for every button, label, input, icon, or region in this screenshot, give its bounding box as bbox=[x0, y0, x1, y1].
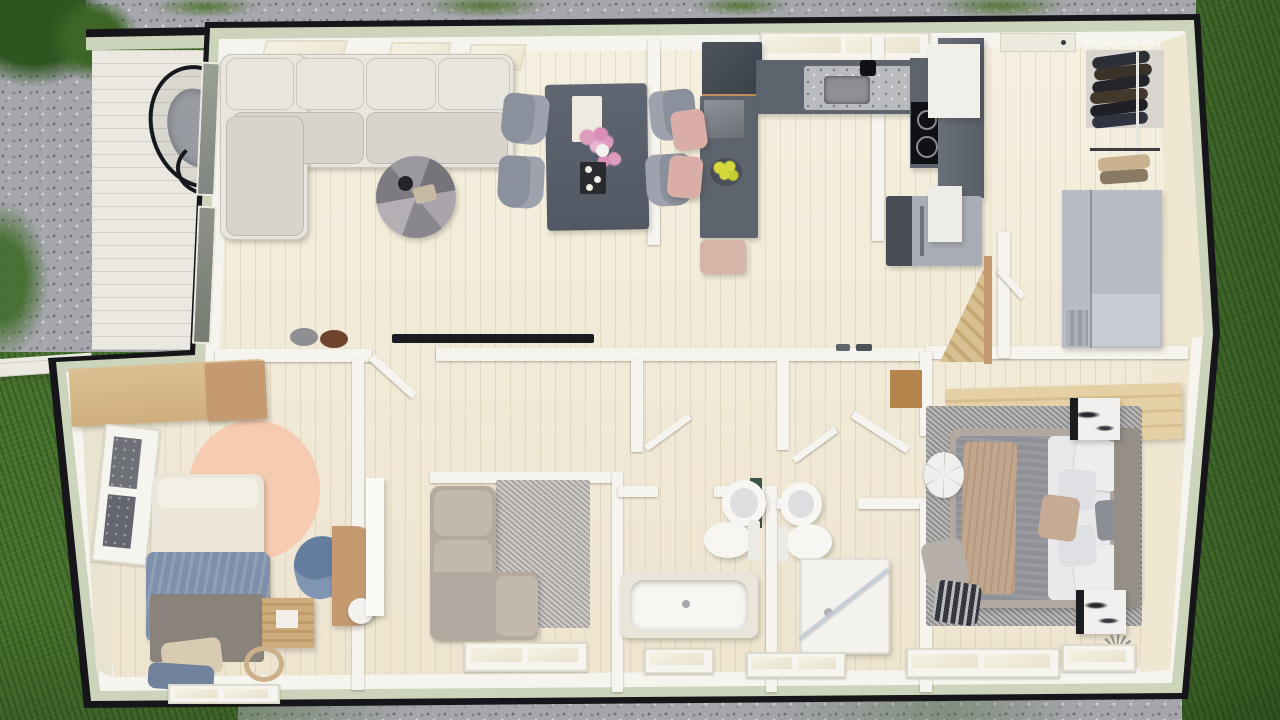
master-window-pane bbox=[984, 654, 1050, 668]
den-window-pane bbox=[528, 648, 578, 662]
master-window-pane bbox=[912, 654, 978, 668]
paper-roll bbox=[244, 646, 284, 682]
round-basin bbox=[780, 482, 822, 526]
dining-chair bbox=[500, 92, 551, 147]
sofa-back-cushion bbox=[438, 58, 510, 110]
nightstand-edge bbox=[1076, 590, 1084, 634]
front-door bbox=[1000, 33, 1076, 52]
kids-window-pane bbox=[109, 436, 142, 489]
den-south-window bbox=[464, 642, 588, 672]
bed-pillow-fold bbox=[158, 478, 258, 508]
kids-south-window bbox=[168, 684, 280, 704]
headboard bbox=[1114, 428, 1140, 608]
den-sofa-cushion bbox=[434, 490, 492, 536]
hall-tan-box bbox=[890, 370, 922, 408]
front-door-handle bbox=[1061, 40, 1066, 45]
bath1-south-window bbox=[644, 648, 714, 674]
desk-cabinet bbox=[205, 360, 268, 421]
flower-pouf bbox=[924, 452, 964, 498]
dining-chair bbox=[497, 155, 546, 209]
round-basin bbox=[722, 480, 766, 526]
den-window-pane bbox=[470, 648, 522, 662]
crate-paper bbox=[276, 610, 298, 628]
bath2-window-pane bbox=[752, 657, 792, 669]
sofa-chaise-cushion bbox=[226, 116, 304, 236]
basin-bowl bbox=[730, 488, 758, 518]
bathtub bbox=[620, 572, 758, 638]
den-sofa-seat bbox=[496, 576, 538, 636]
marble-nightstand bbox=[1076, 590, 1126, 634]
bar-stool-pink bbox=[666, 155, 704, 200]
toilet-bowl bbox=[786, 524, 832, 560]
candle bbox=[586, 184, 593, 191]
bar-stool-pink bbox=[669, 108, 708, 152]
nightstand-edge bbox=[1070, 398, 1078, 440]
candle-tray bbox=[580, 162, 606, 194]
sofa-back-cushion bbox=[226, 58, 294, 110]
wall-hall-stub-2 bbox=[777, 360, 789, 450]
wall-kids-east bbox=[352, 360, 364, 690]
clothes-rail-bar bbox=[1090, 148, 1160, 151]
bath2-south-window bbox=[746, 652, 846, 678]
shelf-divider-line bbox=[1090, 190, 1092, 348]
island-deco bbox=[704, 100, 744, 138]
sofa-back-cushion bbox=[366, 58, 436, 110]
candle bbox=[585, 166, 592, 173]
coffee-station bbox=[702, 42, 762, 97]
master-south-window-small bbox=[1062, 644, 1136, 672]
sofa-back-cushion bbox=[296, 58, 364, 110]
kids-south-window-pane bbox=[224, 689, 268, 698]
marble-nightstand bbox=[1070, 398, 1120, 440]
flower-vase bbox=[596, 144, 609, 157]
sofa-seat-cushion bbox=[366, 112, 508, 164]
white-sideboard bbox=[928, 186, 962, 242]
candle bbox=[594, 176, 601, 183]
toilet-bowl bbox=[704, 522, 752, 558]
shelf-drawers bbox=[1066, 310, 1088, 346]
kids-window-pane bbox=[103, 494, 136, 549]
ladder-rail bbox=[984, 256, 992, 364]
wall-hall-stub-1 bbox=[631, 360, 643, 452]
basin-bowl bbox=[788, 490, 814, 518]
shelf-front bbox=[1090, 294, 1160, 346]
fruit-bowl bbox=[710, 158, 742, 186]
moss-patch bbox=[420, 0, 550, 18]
master-south-window bbox=[906, 648, 1060, 678]
bath2-window-pane bbox=[798, 657, 836, 669]
toilet-tank bbox=[778, 526, 788, 562]
white-cabinet bbox=[928, 44, 980, 118]
elephant-figurine bbox=[290, 328, 318, 346]
fridge-handle bbox=[920, 206, 924, 256]
sliding-door bbox=[366, 478, 384, 616]
sink-basin bbox=[824, 76, 870, 104]
faucet bbox=[860, 60, 876, 76]
corner-shower-tray bbox=[800, 558, 890, 654]
moss-patch bbox=[150, 0, 260, 18]
burner bbox=[916, 136, 938, 158]
kitchen-window-pane bbox=[765, 37, 841, 53]
striped-pillow bbox=[931, 579, 982, 627]
wall-bath2-top-b bbox=[858, 498, 928, 509]
wall-tv bbox=[392, 334, 594, 343]
moss-patch bbox=[690, 0, 790, 16]
accent-pillow-tan bbox=[1037, 494, 1081, 543]
bathtub-drain bbox=[682, 600, 690, 608]
wall-divider-mid bbox=[436, 348, 926, 361]
kitchen-window bbox=[760, 32, 930, 62]
wall-entry-inner bbox=[998, 232, 1010, 358]
bench-pink bbox=[700, 240, 746, 274]
crate-nightstand bbox=[262, 598, 314, 648]
teddy-bear bbox=[320, 330, 348, 348]
shoes bbox=[856, 344, 872, 351]
master-window-pane bbox=[1068, 650, 1126, 662]
toilet-tank bbox=[748, 520, 760, 560]
fridge-side-panel bbox=[886, 196, 912, 266]
coffee-table-cup bbox=[398, 176, 413, 191]
wall-living-kitchen bbox=[648, 40, 660, 245]
grass-tuft bbox=[0, 200, 50, 360]
floor-plan-scene bbox=[0, 0, 1280, 720]
kids-south-window-pane bbox=[174, 689, 218, 698]
shoes bbox=[836, 344, 850, 351]
gray-shelving-unit bbox=[1062, 190, 1162, 348]
bath1-window-pane bbox=[650, 653, 704, 665]
tan-throw bbox=[961, 442, 1018, 595]
wall-bath1-top-a bbox=[618, 486, 658, 497]
